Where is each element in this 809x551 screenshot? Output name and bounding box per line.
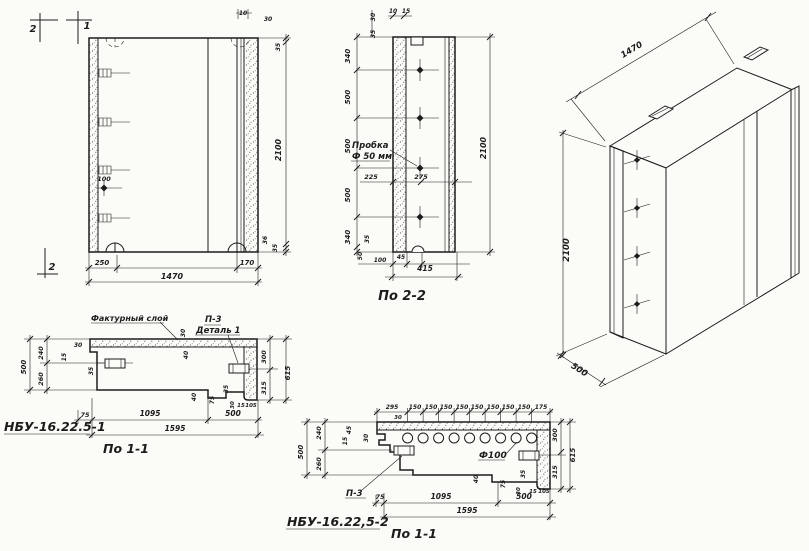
dim-label: 150 (425, 404, 438, 411)
section-mark-2-bottom: 2 (49, 262, 56, 273)
dim-label: 40 (183, 351, 190, 359)
dim-label: 170 (240, 259, 255, 267)
dim-label: 1095 (140, 409, 161, 418)
facing-layer-strip-left (89, 38, 98, 252)
dim-label: 340 (344, 49, 352, 64)
plug-symbols (96, 69, 130, 222)
dim-label: 100 (97, 175, 111, 183)
dim-label: 150 (471, 404, 484, 411)
dim-label: 500 (344, 188, 352, 203)
dim-label: 10 (239, 10, 247, 17)
dim-label: 1595 (165, 424, 186, 433)
dim-label: 30 (264, 16, 272, 23)
front-elevation-view (30, 9, 291, 286)
dim-label: 300 (551, 428, 559, 442)
dim-label: 50 (357, 252, 364, 260)
dim-label: 415 (417, 264, 433, 273)
dim-label: 150 (440, 404, 453, 411)
iso-end-face (610, 146, 666, 354)
dim-label: 15 (402, 8, 410, 15)
iso-lifting-hole (744, 47, 768, 60)
dim-label: 615 (284, 366, 292, 381)
dim-label: 150 (502, 404, 515, 411)
dim-label: 10 (389, 8, 397, 15)
detail-callout: Деталь 1 (195, 326, 240, 336)
dim-label: 30 (516, 487, 522, 495)
dim-label: 260 (315, 457, 323, 471)
dim-label: 500 (20, 360, 28, 375)
dim-label: 150 (456, 404, 469, 411)
section-1-1-title-b: По 1-1 (391, 526, 437, 541)
dim-label: 30 (230, 401, 236, 409)
dim-label: 150 (487, 404, 500, 411)
dim-label: 35 (520, 470, 527, 478)
iso-front-face (666, 90, 791, 354)
facing-layer-strip-right (244, 38, 258, 252)
dim-label: 30 (370, 13, 377, 21)
section-1-1-view-nbu2 (286, 408, 576, 529)
iso-lifting-hole (649, 106, 673, 119)
lifting-hole-notch (411, 37, 423, 45)
section-1-1-title-a: По 1-1 (103, 441, 149, 456)
dim-label: 2100 (562, 238, 572, 262)
dim-label: 35 (364, 235, 371, 243)
dim-label: 105 (538, 489, 550, 495)
dim-label: 150 (409, 404, 422, 411)
blueprint-canvas: По 2-2 Пробка Ф 50 мм Фактурный слой П-3… (0, 0, 809, 551)
dim-label: 500 (569, 361, 589, 379)
dim-label: 275 (414, 173, 428, 181)
dim-label: 35 (88, 367, 95, 375)
p3-callout-b: П-3 (346, 489, 363, 499)
plug-callout-line2: Ф 50 мм (352, 152, 392, 162)
facing-layer-callout: Фактурный слой (91, 314, 169, 323)
dim-label: 15 (237, 403, 245, 409)
dim-label: 1470 (619, 40, 645, 61)
dim-label: 315 (551, 465, 559, 479)
dim-label: 260 (37, 372, 45, 386)
lifting-hole-bottom-arcs (106, 243, 246, 252)
dim-label: 105 (245, 403, 257, 409)
dim-label: 175 (535, 404, 548, 411)
dim-label: 150 (518, 404, 531, 411)
lifting-hole-top-arcs (106, 38, 249, 47)
dim-label: 30 (74, 342, 82, 349)
dim-label: 15 (61, 353, 68, 361)
dim-label: 75 (500, 480, 507, 488)
dim-label: 500 (344, 90, 352, 105)
dim-label: 500 (344, 139, 352, 154)
dim-label: 250 (95, 259, 110, 267)
dim-label: 15 (342, 437, 349, 445)
dim-label: 30 (394, 415, 402, 421)
dim-label: 315 (260, 381, 268, 395)
dim-label: 225 (364, 173, 378, 181)
embedded-anchor-details (97, 359, 249, 373)
dim-label: 240 (37, 346, 45, 360)
dim-label: 1470 (161, 272, 184, 281)
plug-crosses (404, 59, 439, 228)
dim-label: 45 (397, 254, 405, 261)
panel-mark-nbu1: НБУ-16.22.5-1 (4, 419, 106, 434)
dim-label: 35 (272, 244, 279, 252)
dim-label: 2100 (479, 136, 488, 159)
plug-callout-line1: Пробка (352, 140, 389, 151)
embedded-anchor-details (394, 446, 539, 460)
axonometric-view (556, 12, 799, 387)
panel-outline (89, 38, 258, 252)
panel-mark-nbu2: НБУ-16.22,5-2 (287, 514, 389, 529)
facing-layer-cut (377, 422, 550, 430)
dim-label: 1095 (431, 492, 452, 501)
panel-drawing: По 2-2 Пробка Ф 50 мм Фактурный слой П-3… (0, 0, 809, 551)
dim-label: 500 (225, 409, 241, 418)
dim-label: 40 (191, 393, 198, 401)
dim-label: 615 (569, 448, 577, 463)
p3-callout: П-3 (205, 315, 222, 325)
dim-label: 35 (275, 43, 282, 51)
dim-label: 30 (180, 329, 187, 337)
section-mark-1-top: 1 (84, 21, 91, 32)
section-2-2-title: По 2-2 (378, 289, 426, 304)
hole-diameter-callout: Ф100 (479, 451, 507, 461)
dim-label: 300 (260, 350, 268, 364)
hole-row (403, 433, 537, 443)
dim-label: 75 (80, 411, 90, 419)
dim-label: 75 (209, 396, 216, 404)
panel-layer-lines (98, 38, 244, 252)
dim-label: 30 (363, 434, 370, 442)
dim-label: 2100 (274, 138, 283, 161)
dim-label: 240 (315, 426, 323, 440)
dim-label: 15 (529, 489, 537, 495)
dim-label: 40 (473, 475, 480, 483)
dim-label: 36 (262, 236, 269, 244)
section-mark-2-top: 2 (30, 24, 37, 35)
facing-layer-cut (393, 37, 406, 252)
dim-label: 75 (375, 493, 385, 501)
dim-label: 340 (344, 230, 352, 245)
dim-label: 35 (370, 30, 377, 38)
dim-label: 1595 (457, 506, 478, 515)
dim-label: 295 (386, 404, 399, 411)
dim-label: 500 (297, 445, 305, 460)
dim-label: 35 (223, 385, 230, 393)
dim-label: 45 (346, 426, 353, 434)
dim-label: 100 (374, 257, 387, 264)
section-cut-lines (30, 11, 92, 278)
